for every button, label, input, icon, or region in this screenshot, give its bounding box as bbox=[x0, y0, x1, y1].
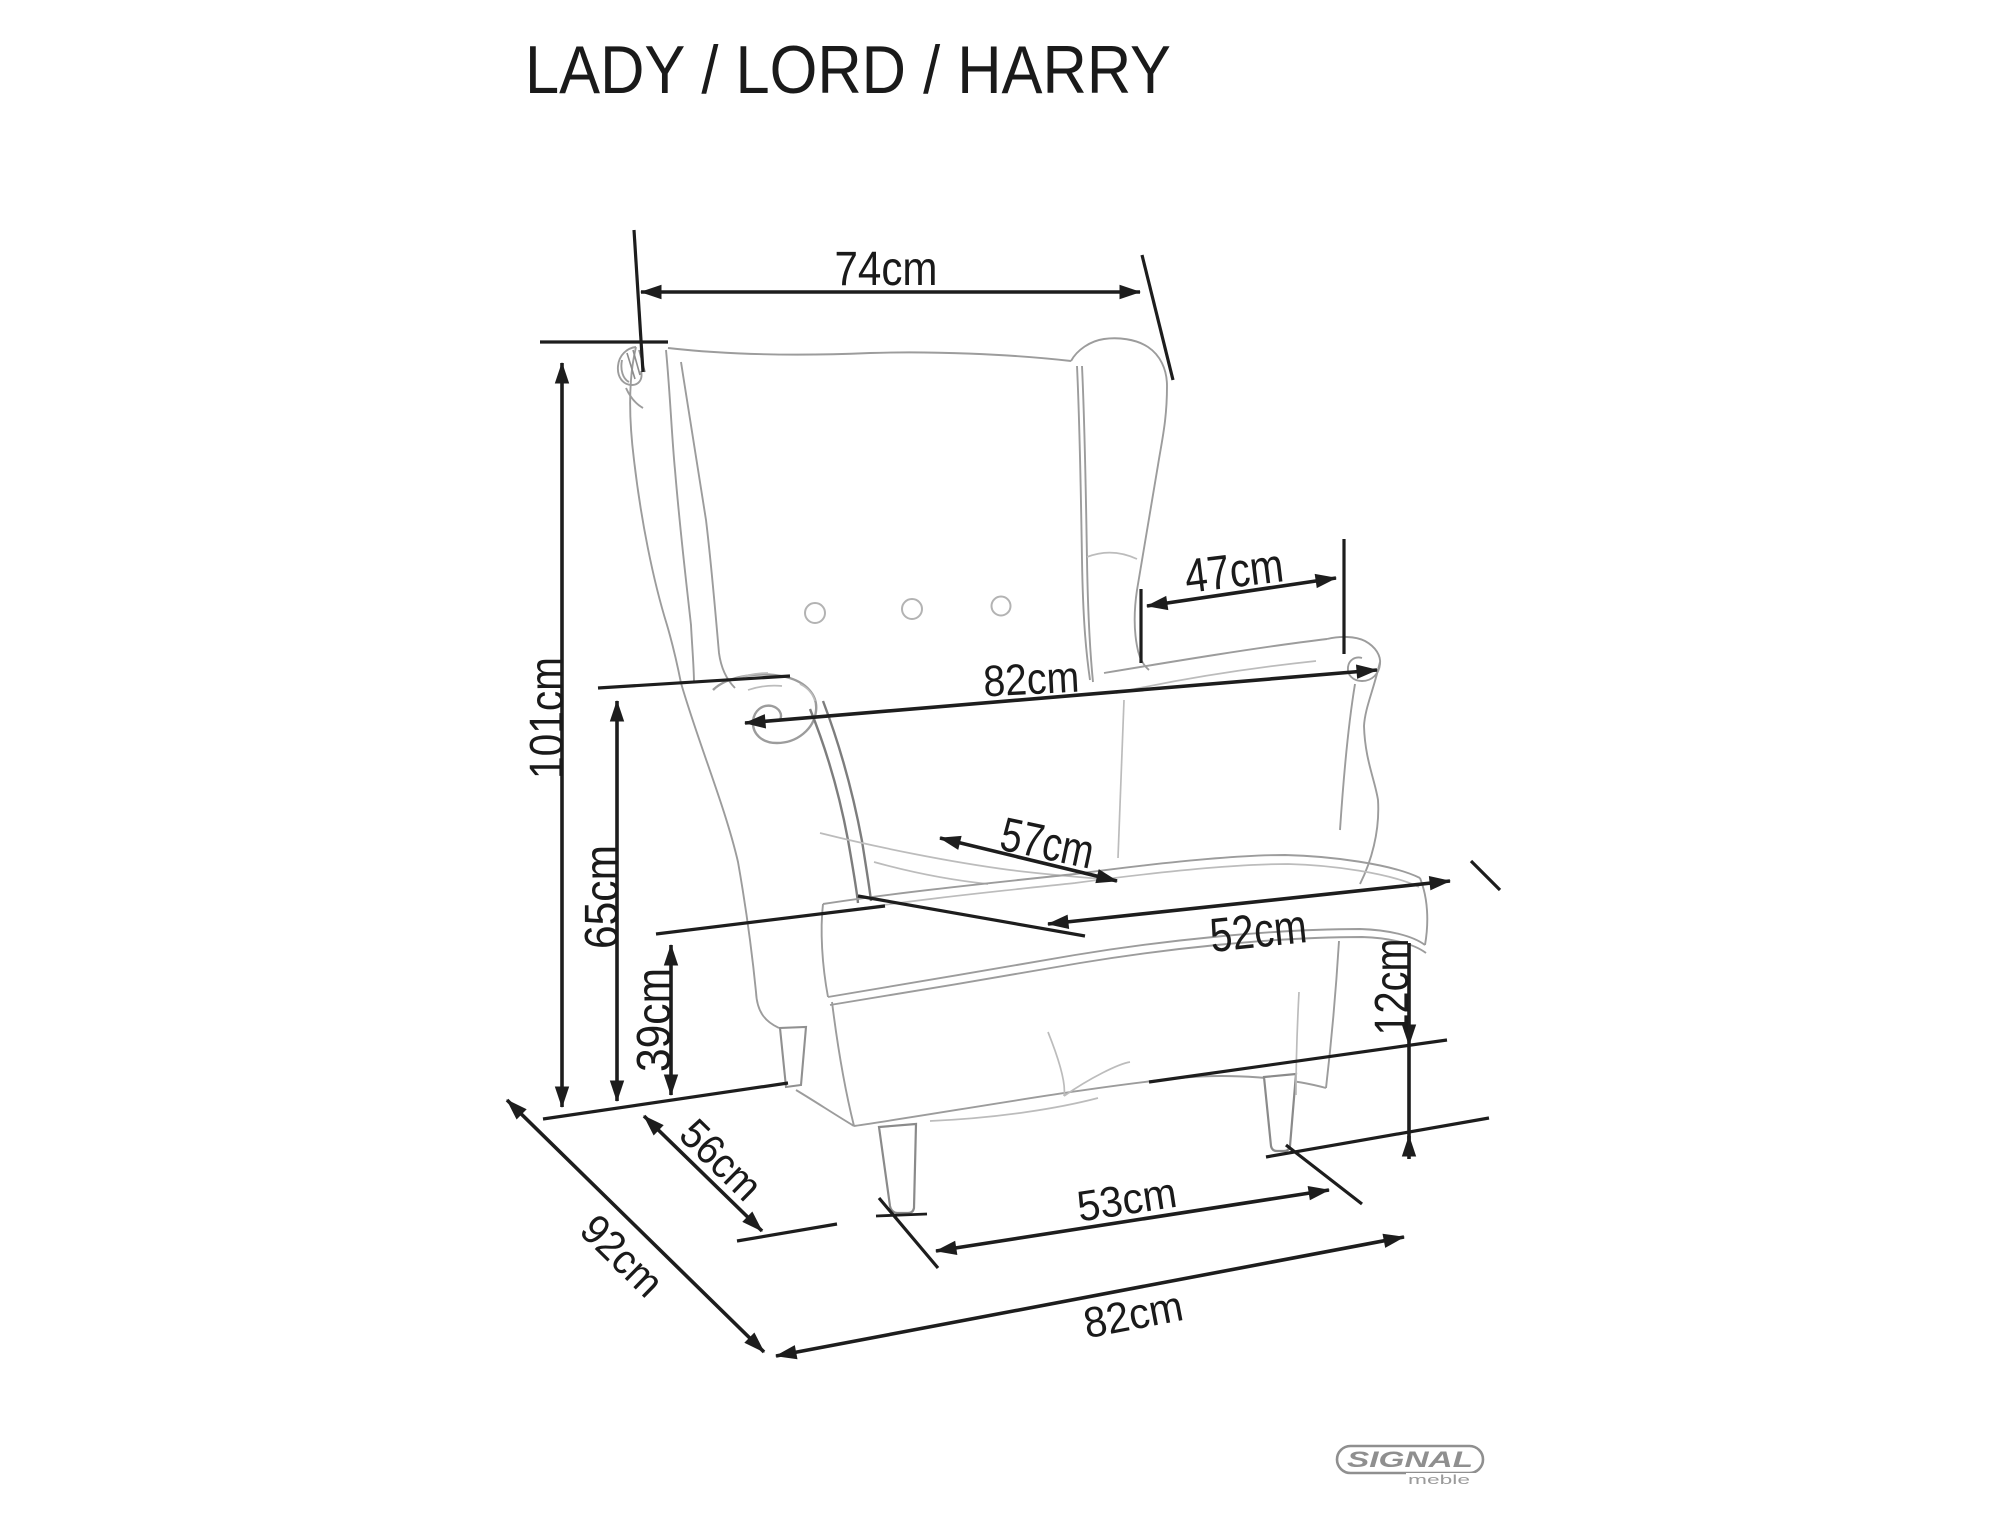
svg-text:meble: meble bbox=[1408, 1472, 1470, 1487]
svg-text:12cm: 12cm bbox=[1366, 939, 1419, 1036]
svg-text:74cm: 74cm bbox=[835, 243, 938, 296]
svg-text:39cm: 39cm bbox=[628, 968, 681, 1072]
svg-text:65cm: 65cm bbox=[576, 845, 629, 949]
svg-text:SIGNAL: SIGNAL bbox=[1347, 1447, 1473, 1472]
svg-text:82cm: 82cm bbox=[982, 653, 1080, 707]
svg-text:52cm: 52cm bbox=[1207, 900, 1309, 963]
svg-text:LADY / LORD / HARRY: LADY / LORD / HARRY bbox=[525, 32, 1171, 108]
svg-text:101cm: 101cm bbox=[521, 657, 574, 779]
